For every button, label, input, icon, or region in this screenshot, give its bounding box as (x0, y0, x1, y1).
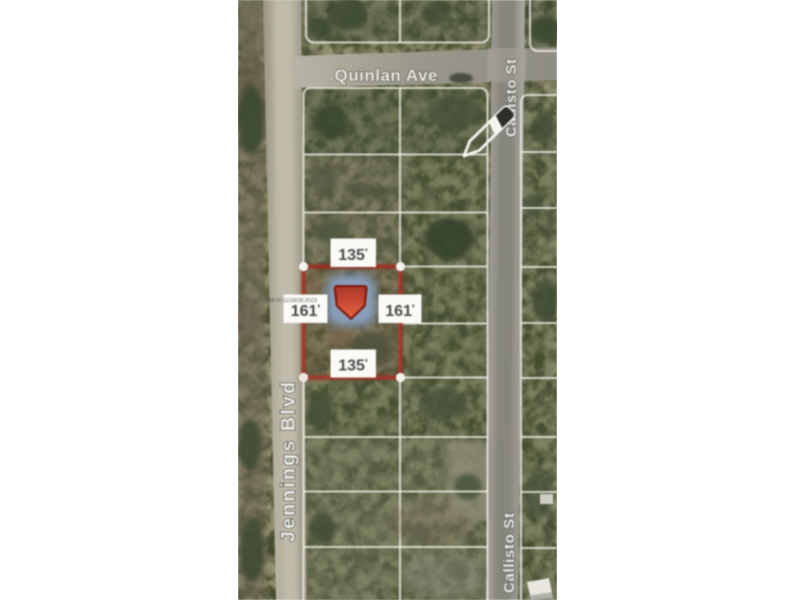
svg-text:135': 135' (338, 357, 368, 375)
svg-text:Callisto St: Callisto St (501, 513, 518, 593)
svg-text:161': 161' (385, 302, 415, 320)
svg-text:Quinlan Ave: Quinlan Ave (335, 66, 438, 85)
svg-text:A11729488 M 11/28/28 2023: A11729488 M 11/28/28 2023 (247, 298, 318, 304)
svg-text:161': 161' (291, 302, 321, 320)
svg-text:135': 135' (338, 246, 368, 264)
